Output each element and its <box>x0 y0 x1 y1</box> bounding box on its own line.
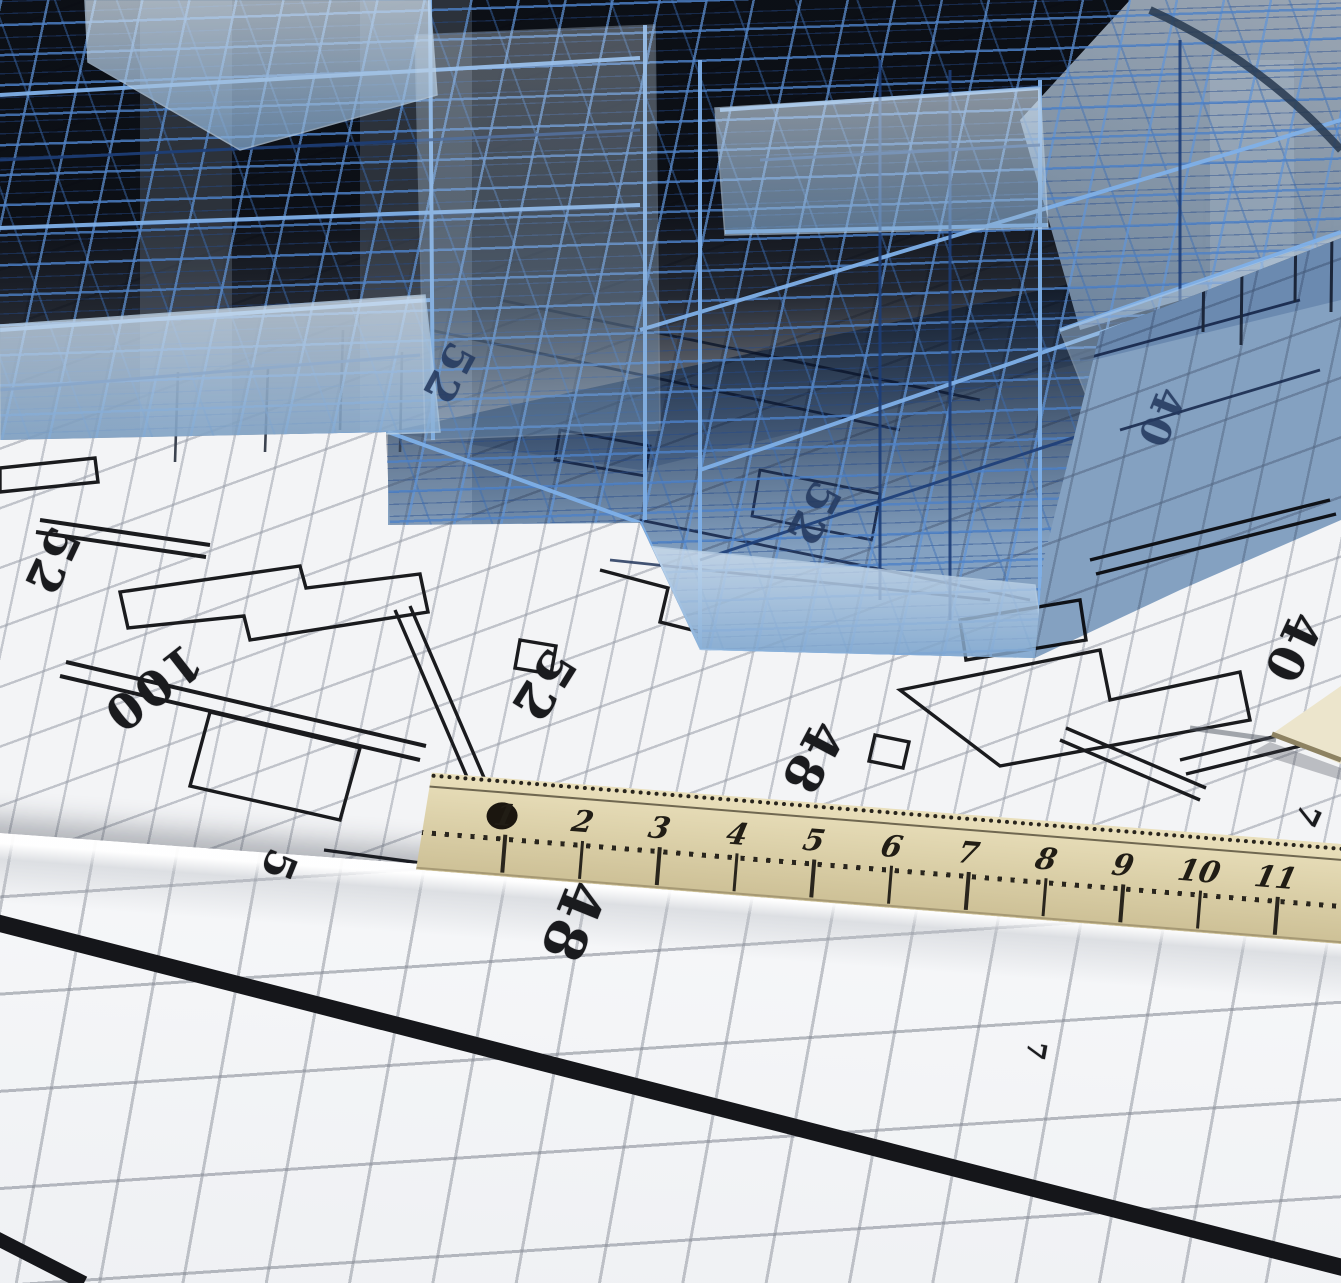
ruler-major-tick <box>1196 891 1203 929</box>
ruler-number: 7 <box>954 835 983 871</box>
plan-border-line <box>0 922 1341 1283</box>
ruler-number: 1 <box>491 798 520 834</box>
ruler-major-tick <box>732 853 739 891</box>
ruler-major-tick <box>500 835 507 873</box>
ruler-number: 4 <box>722 817 751 853</box>
ruler-number: 6 <box>877 829 906 865</box>
ruler-major-tick <box>1273 897 1280 935</box>
ruler-major-tick <box>655 847 662 885</box>
ruler-number: 11 <box>1251 859 1300 897</box>
ruler-major-tick <box>887 866 894 904</box>
ruler-number: 2 <box>568 804 597 840</box>
ruler-number: 3 <box>645 810 674 846</box>
ruler-major-tick <box>578 841 585 879</box>
pencil-tip <box>1190 686 1341 780</box>
ruler-number: 9 <box>1109 848 1138 884</box>
ruler-major-tick <box>809 859 816 897</box>
foreground-overlay <box>0 0 1341 1283</box>
ruler-major-tick <box>964 872 971 910</box>
photo-architecture-blueprint-scene: 5210052484048577525240 1234567891011 <box>0 0 1341 1283</box>
ruler-number: 10 <box>1174 853 1223 891</box>
ruler-number: 5 <box>800 823 829 859</box>
ruler-major-tick <box>1041 878 1048 916</box>
ruler-number: 8 <box>1031 842 1060 878</box>
ruler-major-tick <box>1118 884 1125 922</box>
